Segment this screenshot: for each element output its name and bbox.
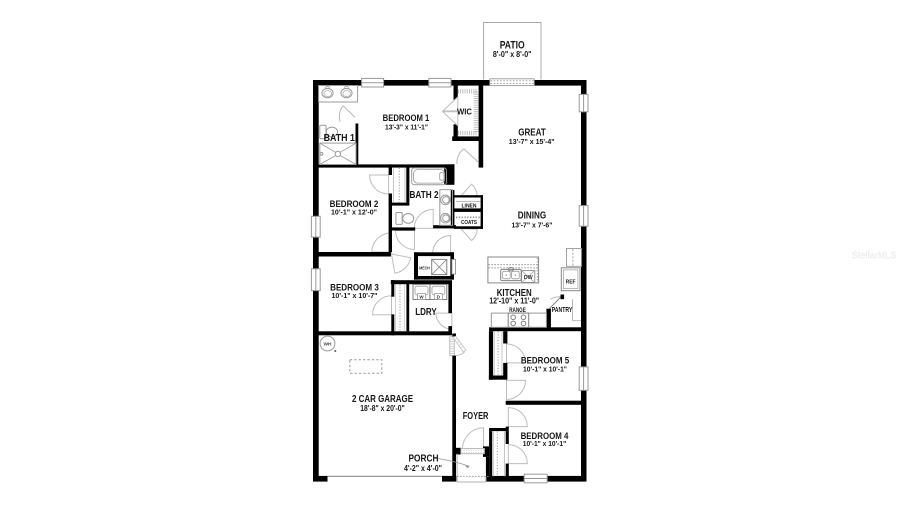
svg-text:FOYER: FOYER bbox=[463, 411, 489, 422]
svg-text:10'-1" x 10'-1": 10'-1" x 10'-1" bbox=[523, 364, 567, 373]
svg-text:LINEN: LINEN bbox=[462, 203, 477, 209]
svg-text:8'-0" x 8'-0": 8'-0" x 8'-0" bbox=[493, 50, 532, 59]
svg-text:10'-1" x 12'-0": 10'-1" x 12'-0" bbox=[331, 207, 377, 216]
svg-text:WIC: WIC bbox=[457, 106, 472, 116]
svg-text:LDRY: LDRY bbox=[415, 307, 437, 318]
svg-text:13'-7" x 15'-4": 13'-7" x 15'-4" bbox=[509, 137, 555, 146]
svg-text:WH: WH bbox=[324, 342, 332, 347]
svg-text:MECH: MECH bbox=[419, 266, 430, 271]
svg-text:PANTRY: PANTRY bbox=[552, 307, 573, 314]
svg-text:COATS: COATS bbox=[461, 220, 477, 226]
svg-text:BATH 2: BATH 2 bbox=[410, 190, 439, 201]
svg-text:13'-3" x 11'-1": 13'-3" x 11'-1" bbox=[385, 122, 428, 131]
svg-text:10'-1" x 10'-1": 10'-1" x 10'-1" bbox=[523, 439, 567, 448]
svg-text:StellarMLS: StellarMLS bbox=[852, 251, 896, 262]
svg-text:13'-7" x 7'-6": 13'-7" x 7'-6" bbox=[512, 220, 553, 229]
svg-text:BATH 1: BATH 1 bbox=[324, 133, 356, 144]
svg-text:RANGE: RANGE bbox=[509, 307, 526, 314]
svg-text:10'-1" x 10'-7": 10'-1" x 10'-7" bbox=[332, 291, 378, 300]
svg-text:18'-8" x 20'-0": 18'-8" x 20'-0" bbox=[360, 404, 405, 413]
svg-text:REF: REF bbox=[566, 280, 577, 286]
svg-text:4'-2" x 4'-0": 4'-2" x 4'-0" bbox=[404, 464, 442, 473]
svg-text:12'-10" x 11'-0": 12'-10" x 11'-0" bbox=[489, 297, 539, 306]
svg-text:DW: DW bbox=[524, 275, 534, 281]
